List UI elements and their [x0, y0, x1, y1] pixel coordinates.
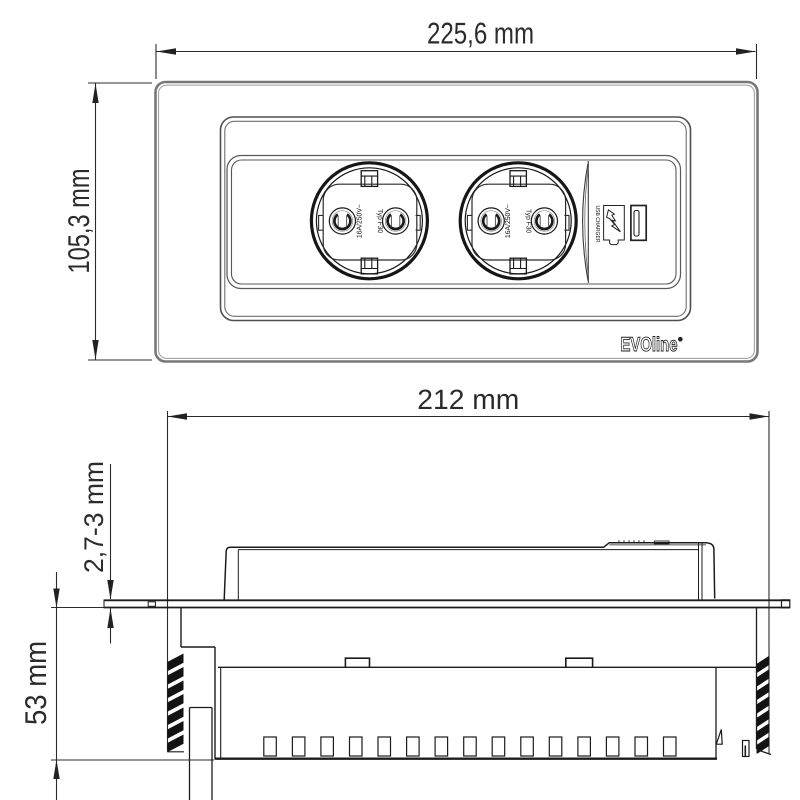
svg-text:EVOline: EVOline	[621, 334, 678, 356]
svg-text:2,7-3 mm: 2,7-3 mm	[79, 461, 109, 573]
svg-text:105,3 mm: 105,3 mm	[63, 169, 96, 274]
svg-text:USB CHARGER: USB CHARGER	[594, 206, 601, 243]
svg-text:225,6 mm: 225,6 mm	[427, 18, 534, 51]
svg-text:212 mm: 212 mm	[417, 384, 519, 415]
svg-text:53 mm: 53 mm	[20, 641, 53, 725]
